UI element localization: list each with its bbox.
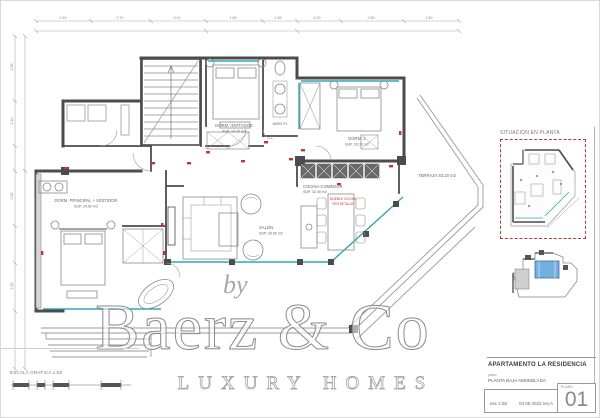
kitchen-cabinets <box>301 164 379 178</box>
doc-name: PLANTA BAJA AMUEBLADA <box>488 378 546 383</box>
bottom-left-rule <box>1 348 139 349</box>
panel-divider <box>594 127 595 413</box>
dim-label: 2.10 <box>10 118 14 125</box>
room-label-master: DORM. PRINCIPAL + VESTIDOR <box>55 198 118 203</box>
dim-label: 2.70 <box>117 16 124 20</box>
keyplan2 <box>505 247 585 303</box>
sheet-number: 01 <box>558 388 595 412</box>
room-area-bedroom2: SUP. 16.30 m2 <box>345 143 369 147</box>
room-label-living: SALON <box>259 225 273 230</box>
dimension-lines-left <box>13 34 27 371</box>
dim-label: 2.85 <box>368 16 375 20</box>
door-swings <box>101 129 331 277</box>
entry-fixtures <box>67 105 129 135</box>
dimension-labels-top: 2.45 2.70 3.10 1.85 1.55 2.00 2.85 2.60 <box>60 16 433 20</box>
keyplan1-miniplan <box>501 140 585 238</box>
bedroom2-furniture <box>300 81 388 149</box>
note-line1: MUEBLE COCINA <box>330 197 357 201</box>
guest-bedroom-furniture <box>206 59 266 128</box>
dim-label: 2.45 <box>60 16 67 20</box>
exterior-walls <box>36 58 404 311</box>
room-area-master: SUP. 24.60 m2 <box>74 205 98 209</box>
dim-label: 1.85 <box>230 16 237 20</box>
keyplan-highlight-frame <box>500 139 586 239</box>
living-furniture <box>168 194 263 260</box>
keyplan1-label: SITUACION EN PLANTA <box>500 130 560 136</box>
kitchen-red-note: MUEBLE COCINA VER DETALLE <box>330 197 357 206</box>
note-line2: VER DETALLE <box>332 202 353 206</box>
project-title: APARTAMENTO LA RESIDENCIA <box>488 362 587 368</box>
bathroom-fixtures <box>273 61 287 117</box>
room-label-bedroom2: DORM. 2 <box>348 136 366 141</box>
sheet-number-box: PLANO 01 <box>557 383 596 413</box>
outlet-symbols <box>41 131 401 255</box>
watermark-brand: Baerz & Co <box>95 291 430 364</box>
dimension-lines-top <box>34 19 461 33</box>
drawing-sheet: 2.45 2.70 3.10 1.85 1.55 2.00 2.85 2.60 … <box>0 0 600 418</box>
dim-label: 2.45 <box>10 283 14 290</box>
scale-bar-label: ESCALA GRAFICA 1:50 <box>10 370 62 375</box>
scale-bar <box>11 380 131 390</box>
room-label-bedroom1: DORM. INVITADOS <box>215 123 253 128</box>
dimension-labels-left: 1.85 2.10 3.95 2.45 <box>10 64 14 290</box>
room-label-bath1: BAÑO P1 <box>273 121 288 126</box>
doc-label: plano <box>488 373 497 377</box>
reference-text: 04.05.2022 rev.A <box>519 401 553 406</box>
room-label-terrace: TERRAZA 83.20 m2 <box>418 173 457 178</box>
window-wall-hatch <box>36 174 41 308</box>
keyplan2-miniplan <box>505 247 585 303</box>
titleblock-topline <box>487 357 596 358</box>
dim-label: 1.85 <box>10 64 14 71</box>
dim-label: 3.10 <box>174 16 181 20</box>
dim-label: 2.00 <box>314 16 321 20</box>
dim-label: 2.60 <box>426 16 433 20</box>
room-area-kitchen: SUP. 32.40 m2 <box>303 190 327 194</box>
room-area-living: SUP. 28.50 m2 <box>259 232 283 236</box>
watermark-tagline: LUXURY HOMES <box>178 373 435 394</box>
dim-label: 1.55 <box>275 16 282 20</box>
staircase <box>142 59 200 145</box>
scale-text: esc 1:50 <box>490 401 507 406</box>
room-label-kitchen: COCINA-COMEDOR <box>303 184 343 189</box>
room-area-bedroom1: SUP. 14.20 m2 <box>222 130 246 134</box>
dim-label: 3.95 <box>10 193 14 200</box>
